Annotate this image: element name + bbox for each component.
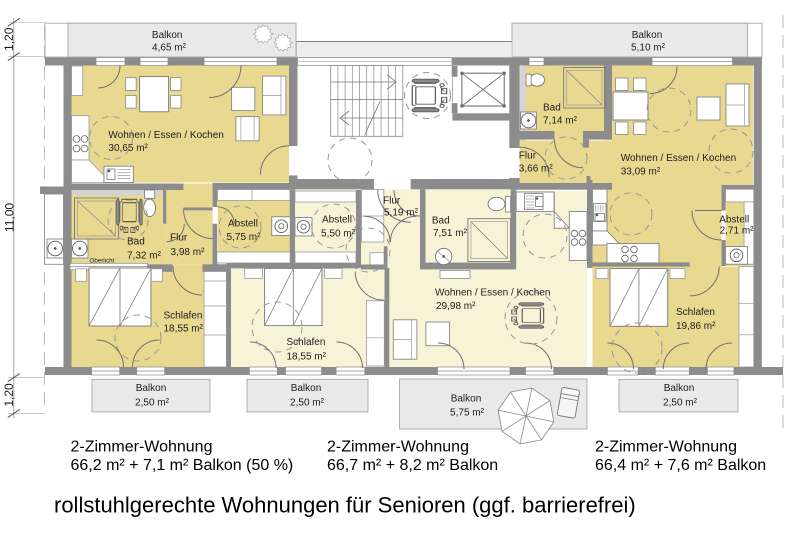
svg-text:Wohnen / Essen / Kochen: Wohnen / Essen / Kochen — [621, 153, 736, 164]
svg-text:18,55 m²: 18,55 m² — [287, 352, 327, 363]
svg-text:Bad: Bad — [432, 216, 450, 227]
svg-text:18,55 m²: 18,55 m² — [164, 324, 204, 335]
svg-text:Abstell: Abstell — [322, 215, 352, 226]
svg-text:2,50 m²: 2,50 m² — [663, 397, 698, 408]
svg-text:Bad: Bad — [127, 236, 145, 247]
svg-text:5,75 m²: 5,75 m² — [450, 408, 485, 419]
svg-text:3,66 m²: 3,66 m² — [519, 164, 554, 175]
svg-text:66,7 m² + 8,2 m² Balkon: 66,7 m² + 8,2 m² Balkon — [327, 457, 498, 474]
svg-text:5,19 m²: 5,19 m² — [384, 208, 419, 219]
svg-text:2-Zimmer-Wohnung: 2-Zimmer-Wohnung — [71, 439, 213, 456]
svg-text:Schlafen: Schlafen — [676, 307, 715, 318]
svg-text:Balkon: Balkon — [632, 30, 663, 41]
svg-text:Flur: Flur — [383, 196, 401, 207]
svg-text:7,32 m²: 7,32 m² — [127, 250, 162, 261]
svg-text:5,10 m²: 5,10 m² — [631, 42, 666, 53]
svg-text:33,09 m²: 33,09 m² — [621, 167, 661, 178]
svg-text:3,98 m²: 3,98 m² — [171, 247, 206, 258]
svg-text:Balkon: Balkon — [664, 383, 695, 394]
svg-text:Balkon: Balkon — [451, 394, 482, 405]
svg-text:Abstell: Abstell — [228, 219, 258, 230]
svg-text:7,51 m²: 7,51 m² — [433, 228, 468, 239]
svg-text:2,50 m²: 2,50 m² — [290, 397, 325, 408]
svg-text:66,4 m² + 7,6 m² Balkon: 66,4 m² + 7,6 m² Balkon — [595, 457, 766, 474]
svg-text:Balkon: Balkon — [152, 30, 183, 41]
svg-text:7,14 m²: 7,14 m² — [543, 116, 578, 127]
svg-text:2-Zimmer-Wohnung: 2-Zimmer-Wohnung — [327, 439, 469, 456]
svg-text:Balkon: Balkon — [291, 383, 322, 394]
svg-text:2-Zimmer-Wohnung: 2-Zimmer-Wohnung — [595, 439, 737, 456]
svg-text:11,00: 11,00 — [3, 203, 17, 232]
svg-text:Oberlicht: Oberlicht — [90, 258, 115, 265]
svg-text:29,98 m²: 29,98 m² — [436, 301, 476, 312]
svg-text:Bad: Bad — [543, 102, 561, 113]
svg-text:5,75 m²: 5,75 m² — [227, 232, 262, 243]
svg-text:Balkon: Balkon — [136, 383, 167, 394]
svg-text:Flur: Flur — [519, 151, 537, 162]
svg-text:rollstuhlgerechte Wohnungen fü: rollstuhlgerechte Wohnungen für Senioren… — [54, 493, 636, 518]
svg-text:Schlafen: Schlafen — [287, 337, 326, 348]
svg-text:Abstell: Abstell — [719, 215, 749, 226]
svg-text:4,65 m²: 4,65 m² — [152, 42, 187, 53]
svg-text:5,50 m²: 5,50 m² — [321, 228, 356, 239]
svg-text:2,50 m²: 2,50 m² — [135, 397, 170, 408]
svg-text:1,20: 1,20 — [2, 27, 16, 51]
svg-text:Schlafen: Schlafen — [164, 311, 203, 322]
svg-text:Flur: Flur — [170, 233, 188, 244]
svg-text:Wohnen / Essen / Kochen: Wohnen / Essen / Kochen — [108, 130, 223, 141]
svg-text:Wohnen / Essen / Kochen: Wohnen / Essen / Kochen — [435, 288, 550, 299]
svg-text:66,2 m² + 7,1 m² Balkon (50 %): 66,2 m² + 7,1 m² Balkon (50 %) — [71, 457, 294, 474]
svg-text:19,86 m²: 19,86 m² — [676, 321, 716, 332]
svg-text:1,20: 1,20 — [2, 383, 16, 407]
svg-text:2,71 m²: 2,71 m² — [720, 226, 755, 237]
svg-text:30,65 m²: 30,65 m² — [108, 143, 148, 154]
